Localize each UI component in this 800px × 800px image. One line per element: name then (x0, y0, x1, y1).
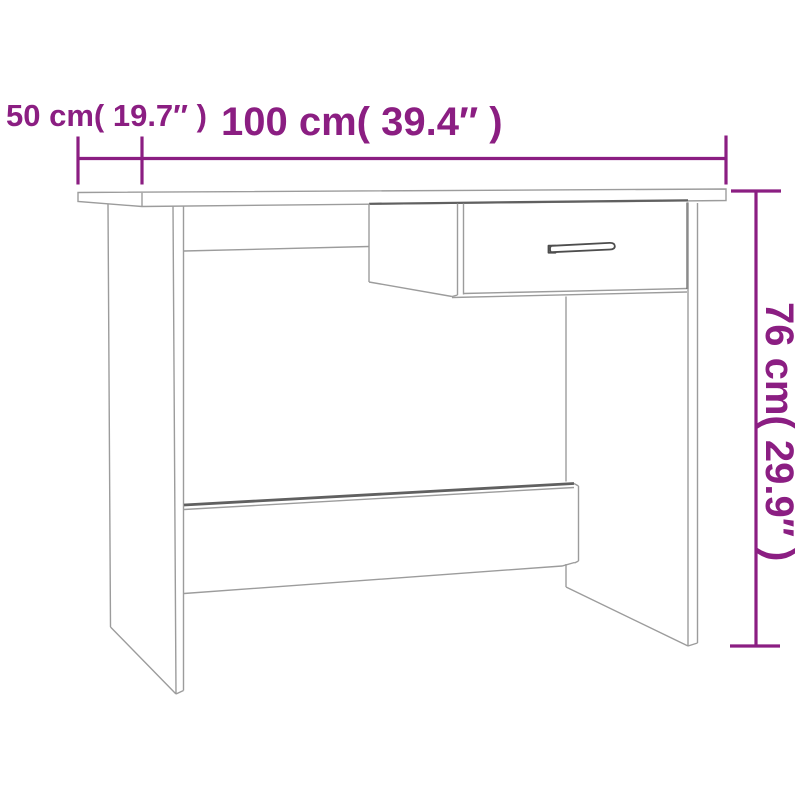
drawer-handle (549, 243, 615, 253)
stretcher-bottom-edge (184, 563, 575, 594)
stretcher-right-end (574, 484, 579, 564)
right-panel (566, 203, 698, 646)
stretcher-top-edge (184, 484, 574, 506)
width-dimension-label: 100 cm( 39.4″ ) (221, 102, 503, 142)
stretcher-top-face-edge (184, 488, 574, 510)
depth-dimension-line (78, 137, 142, 185)
drawer-unit-side (369, 204, 464, 297)
drawer-handle-bar (550, 243, 615, 252)
left-panel (108, 205, 184, 695)
height-dimension-label: 76 cm( 29.9″ ) (759, 302, 799, 561)
back-stretcher-panel (184, 484, 579, 594)
depth-dimension-label: 50 cm( 19.7″ ) (6, 100, 207, 131)
product-dimension-diagram: 50 cm( 19.7″ ) 100 cm( 39.4″ ) 76 cm( 29… (0, 0, 800, 800)
desk (78, 189, 726, 694)
back-apron-edge (184, 247, 369, 252)
